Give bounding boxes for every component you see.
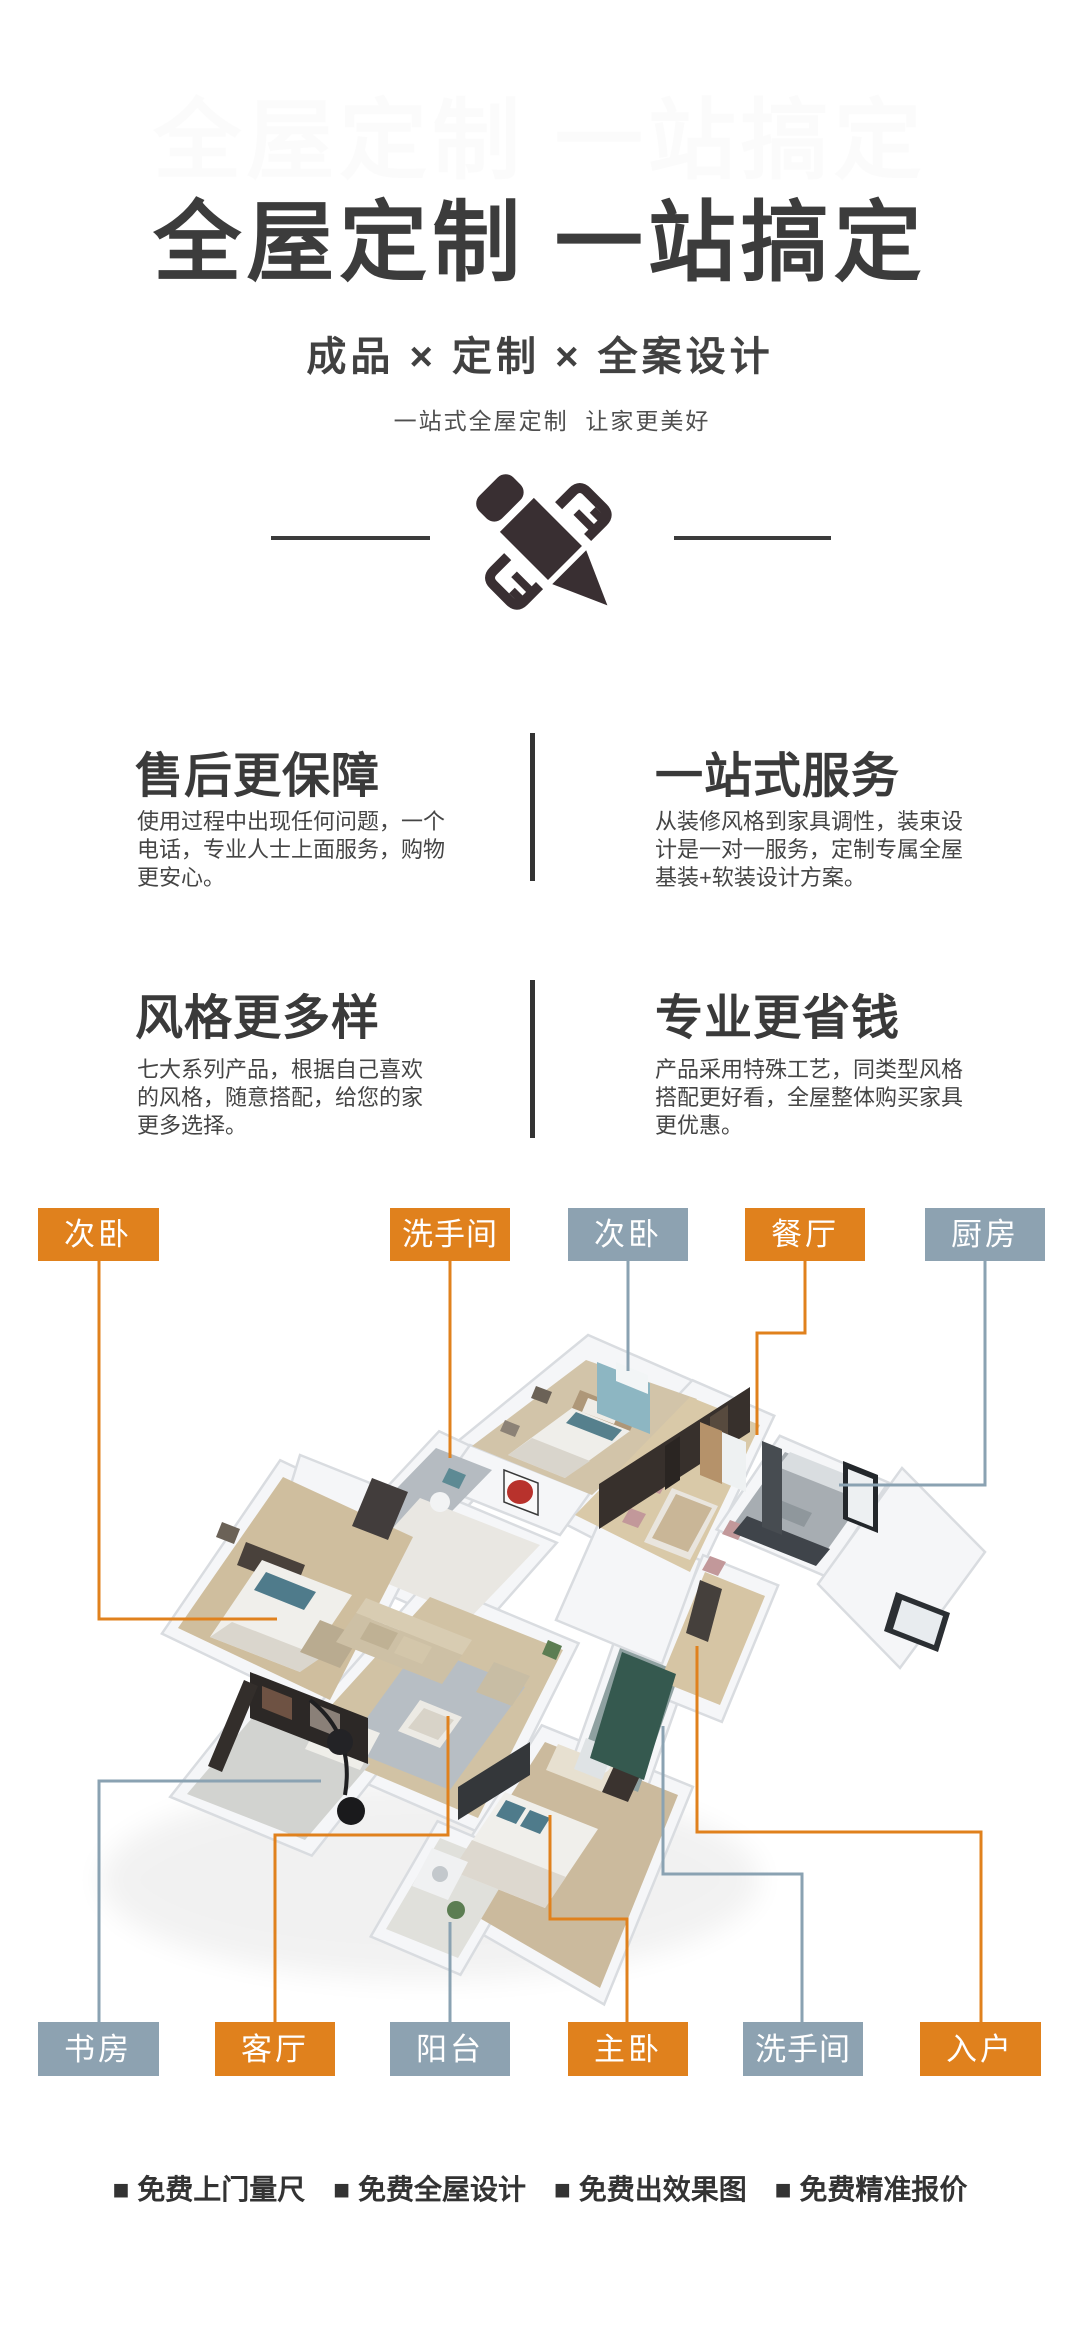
svg-text:次卧: 次卧: [594, 1217, 662, 1252]
svg-text:洗手间: 洗手间: [755, 2032, 851, 2067]
svg-text:客厅: 客厅: [241, 2032, 309, 2067]
svg-text:次卧: 次卧: [64, 1217, 132, 1252]
svg-text:书房: 书房: [64, 2032, 132, 2067]
svg-text:入户: 入户: [946, 2032, 1014, 2067]
svg-text:洗手间: 洗手间: [402, 1217, 498, 1252]
svg-text:阳台: 阳台: [416, 2032, 484, 2067]
svg-text:主卧: 主卧: [594, 2032, 662, 2067]
svg-text:餐厅: 餐厅: [771, 1217, 839, 1252]
svg-text:厨房: 厨房: [951, 1217, 1019, 1252]
